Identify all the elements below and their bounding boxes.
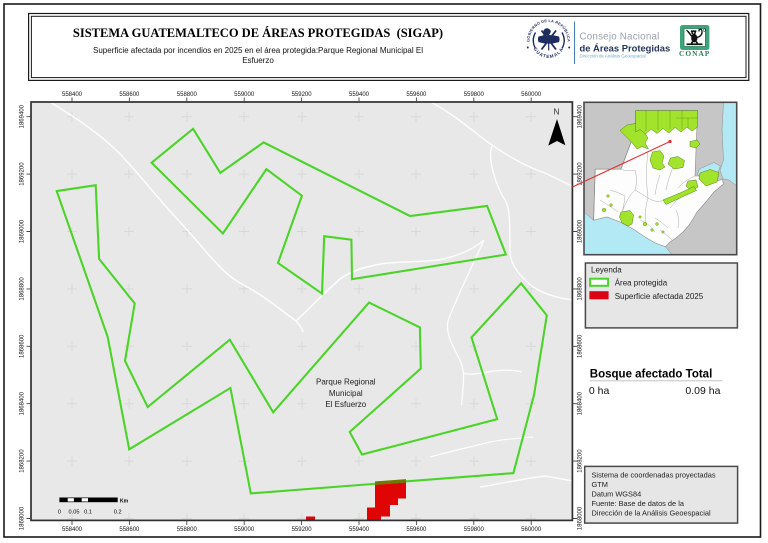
svg-text:Dirección de la Análisis Geoes: Dirección de la Análisis Geoespacial [592, 509, 711, 518]
svg-text:Fuente: Base de datos de la: Fuente: Base de datos de la [592, 499, 685, 508]
svg-text:558400: 558400 [62, 92, 83, 98]
svg-text:Municipal: Municipal [329, 389, 363, 398]
svg-text:1869200: 1869200 [20, 162, 26, 186]
svg-text:1869400: 1869400 [578, 104, 584, 128]
svg-text:558600: 558600 [119, 527, 140, 533]
svg-text:0.2: 0.2 [114, 510, 122, 516]
svg-text:CONAP: CONAP [679, 49, 710, 58]
svg-text:GTM: GTM [592, 480, 608, 489]
svg-text:0 ha: 0 ha [589, 385, 610, 397]
svg-text:559800: 559800 [464, 92, 485, 98]
svg-text:558600: 558600 [119, 92, 140, 98]
svg-text:559200: 559200 [292, 92, 313, 98]
svg-text:560000: 560000 [521, 92, 542, 98]
svg-text:558800: 558800 [177, 92, 198, 98]
svg-text:Km: Km [120, 499, 129, 505]
svg-text:Leyenda: Leyenda [591, 266, 622, 275]
svg-text:1868600: 1868600 [578, 334, 584, 358]
svg-text:de Áreas Protegidas: de Áreas Protegidas [580, 43, 671, 54]
svg-text:1868400: 1868400 [20, 391, 26, 415]
svg-text:1868800: 1868800 [20, 277, 26, 301]
svg-text:559000: 559000 [234, 92, 255, 98]
svg-text:N: N [553, 107, 559, 117]
svg-text:El Esfuerzo: El Esfuerzo [325, 400, 366, 409]
svg-text:1869400: 1869400 [20, 104, 26, 128]
svg-text:Esfuerzo: Esfuerzo [242, 56, 274, 65]
svg-text:558400: 558400 [62, 527, 83, 533]
svg-text:Área protegida: Área protegida [615, 278, 668, 287]
svg-text:1868800: 1868800 [578, 277, 584, 301]
svg-text:Superficie afectada por incend: Superficie afectada por incendios en 202… [93, 46, 423, 55]
svg-text:560000: 560000 [521, 527, 542, 533]
svg-text:1868000: 1868000 [578, 506, 584, 530]
svg-text:559200: 559200 [292, 527, 313, 533]
svg-text:Parque Regional: Parque Regional [316, 378, 376, 387]
svg-text:0.09 ha: 0.09 ha [685, 385, 720, 397]
svg-text:SISTEMA GUATEMALTECO DE ÁREAS: SISTEMA GUATEMALTECO DE ÁREAS PROTEGIDAS… [73, 26, 443, 40]
svg-text:559800: 559800 [464, 527, 485, 533]
svg-text:559400: 559400 [349, 527, 370, 533]
svg-text:1868200: 1868200 [578, 449, 584, 473]
svg-text:1869000: 1869000 [20, 219, 26, 243]
svg-text:Bosque afectado Total: Bosque afectado Total [590, 369, 712, 381]
svg-text:Dirección de Análisis Geoespac: Dirección de Análisis Geoespacial [580, 54, 646, 59]
svg-text:559600: 559600 [406, 527, 427, 533]
svg-text:Datum WGS84: Datum WGS84 [592, 490, 642, 499]
svg-text:0.05: 0.05 [69, 510, 80, 516]
svg-text:559600: 559600 [406, 92, 427, 98]
svg-text:1868600: 1868600 [20, 334, 26, 358]
svg-text:Superficie afectada 2025: Superficie afectada 2025 [615, 292, 704, 301]
svg-text:558800: 558800 [177, 527, 198, 533]
svg-text:1869000: 1869000 [578, 219, 584, 243]
svg-text:0: 0 [58, 510, 61, 516]
svg-text:559000: 559000 [234, 527, 255, 533]
svg-text:Consejo Nacional: Consejo Nacional [580, 32, 660, 43]
svg-text:1868400: 1868400 [578, 391, 584, 415]
svg-text:Sistema de coordenadas proyect: Sistema de coordenadas proyectadas [592, 471, 716, 480]
svg-text:559400: 559400 [349, 92, 370, 98]
svg-text:1868000: 1868000 [20, 506, 26, 530]
svg-text:1868200: 1868200 [20, 449, 26, 473]
svg-text:0.1: 0.1 [84, 510, 92, 516]
